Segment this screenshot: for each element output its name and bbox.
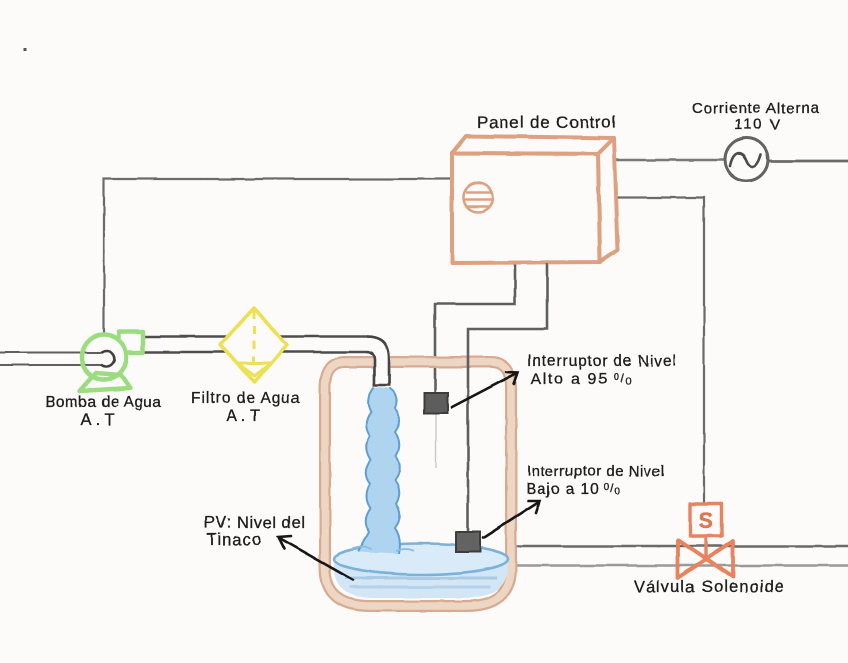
svg-text:Interruptor de Nivel: Interruptor de Nivel [527,463,665,480]
svg-text:S: S [699,508,714,533]
svg-text:110 V: 110 V [734,116,782,133]
svg-text:Panel de Control: Panel de Control [477,113,616,132]
svg-text:Bomba de Agua: Bomba de Agua [45,394,162,411]
svg-text:PV: Nivel del: PV: Nivel del [204,514,306,532]
svg-text:A . T: A . T [226,407,260,425]
svg-text:Corriente Alterna: Corriente Alterna [692,100,820,117]
svg-text:Tinaco: Tinaco [207,531,262,549]
svg-text:Válvula Solenoide: Válvula Solenoide [634,578,785,596]
svg-text:A . T: A . T [81,411,115,429]
svg-text:Filtro de Agua: Filtro de Agua [191,390,301,407]
svg-text:Interruptor de Nivel: Interruptor de Nivel [527,353,677,370]
